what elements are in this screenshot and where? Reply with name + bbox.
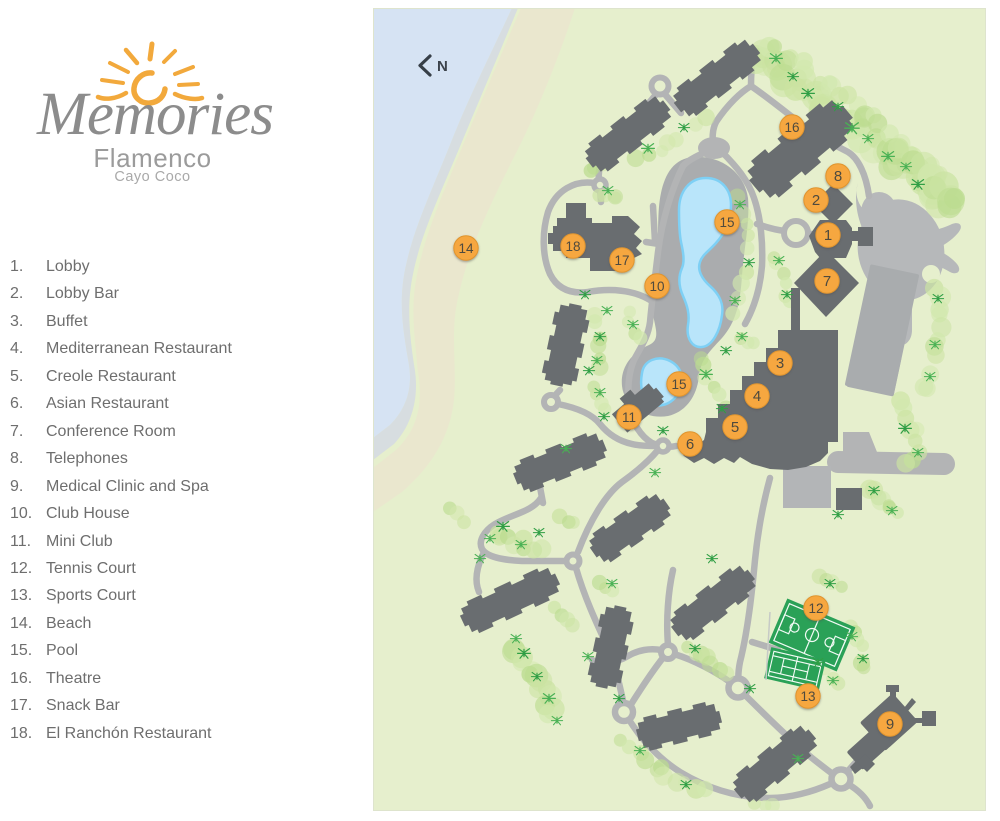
svg-text:4: 4 (753, 388, 761, 405)
svg-text:2: 2 (812, 192, 820, 209)
svg-text:10: 10 (649, 279, 664, 294)
svg-text:8: 8 (834, 168, 842, 185)
svg-text:6: 6 (686, 436, 694, 453)
svg-text:15: 15 (671, 377, 686, 392)
svg-text:15: 15 (719, 215, 734, 230)
svg-text:3: 3 (776, 355, 784, 372)
svg-text:7: 7 (823, 273, 831, 290)
svg-text:16: 16 (784, 120, 799, 135)
svg-text:13: 13 (800, 689, 815, 704)
svg-text:18: 18 (565, 239, 580, 254)
svg-text:9: 9 (886, 716, 894, 733)
svg-text:1: 1 (824, 227, 832, 244)
svg-text:14: 14 (458, 241, 474, 256)
svg-text:5: 5 (731, 419, 739, 436)
svg-text:12: 12 (808, 601, 823, 616)
svg-text:N: N (437, 58, 448, 75)
svg-text:11: 11 (622, 410, 636, 425)
svg-text:17: 17 (614, 253, 629, 268)
